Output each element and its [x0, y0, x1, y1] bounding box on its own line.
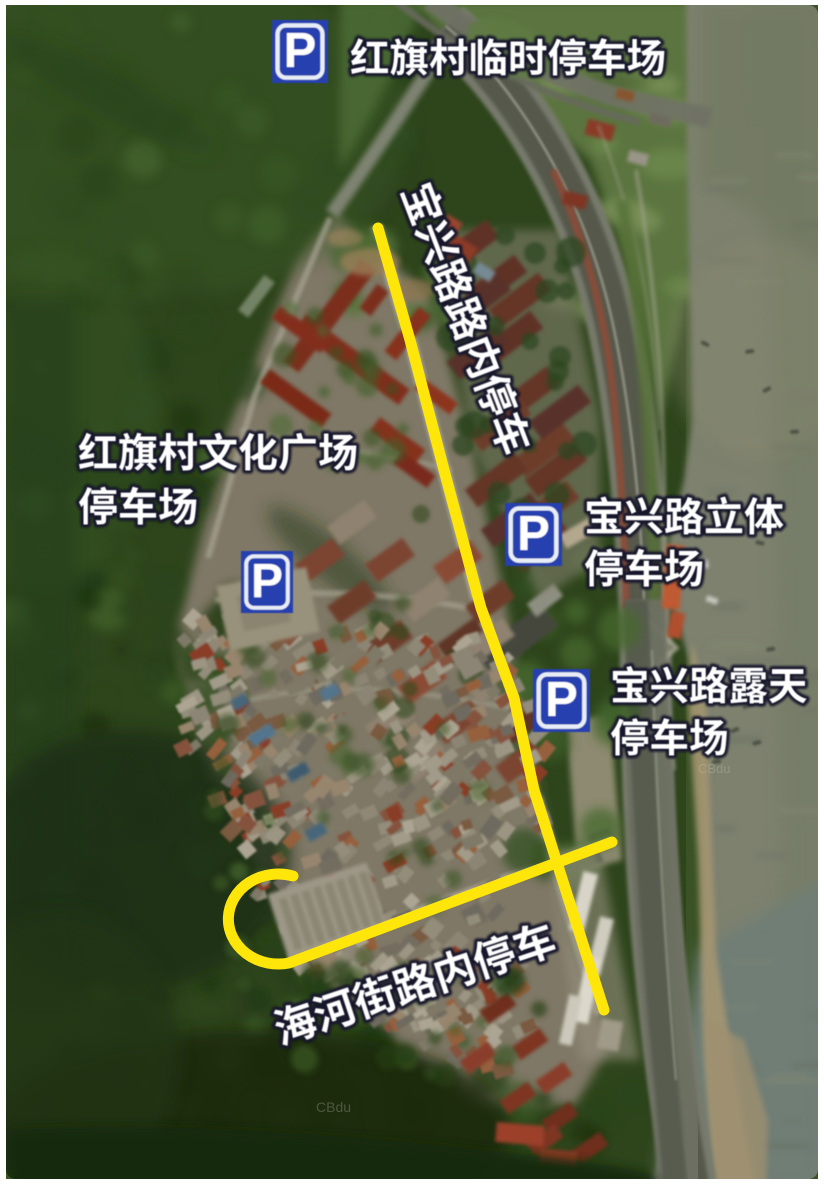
svg-text:CBdu: CBdu — [316, 1099, 351, 1115]
svg-text:P: P — [517, 507, 550, 561]
svg-text:P: P — [251, 555, 283, 608]
svg-text:P: P — [284, 24, 317, 78]
svg-text:CBdu: CBdu — [698, 761, 731, 776]
svg-text:P: P — [545, 673, 578, 727]
